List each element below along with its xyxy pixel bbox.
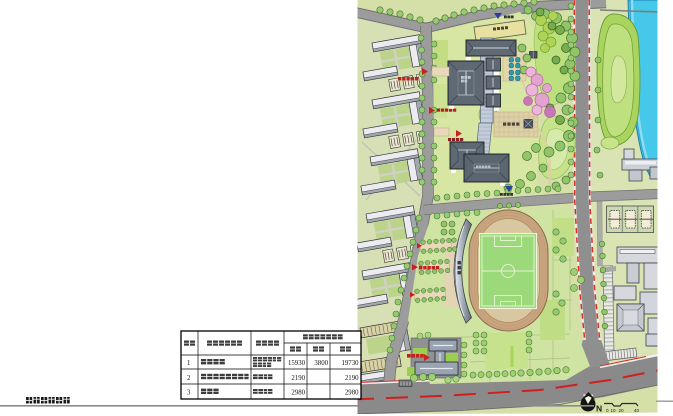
svg-text:3: 3 [187,389,191,396]
svg-text:10: 10 [611,408,617,413]
svg-text:20: 20 [619,408,625,413]
svg-text:2980: 2980 [291,389,305,396]
svg-text:2190: 2190 [291,375,305,382]
svg-text:2: 2 [187,375,191,382]
svg-text:19730: 19730 [342,360,360,367]
svg-text:1: 1 [187,360,190,367]
svg-text:0: 0 [606,408,609,413]
svg-text:15930: 15930 [288,360,306,367]
svg-text:40: 40 [634,408,640,413]
svg-text:2980: 2980 [345,389,359,396]
svg-text:3800: 3800 [314,360,328,367]
svg-text:N: N [596,404,602,414]
svg-text:2190: 2190 [345,375,359,382]
